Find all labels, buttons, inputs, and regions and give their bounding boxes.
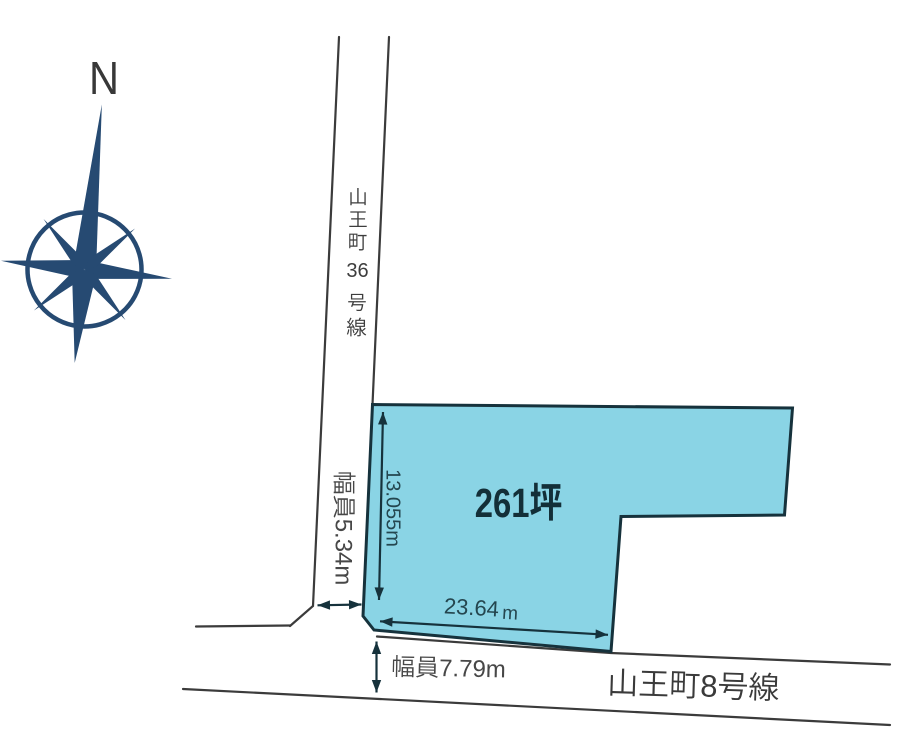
svg-text:m: m [330,565,357,585]
svg-text:N: N [89,52,119,104]
svg-text:9: 9 [472,656,486,683]
svg-text:3: 3 [330,539,357,552]
svg-text:2: 2 [475,479,493,525]
svg-text:23.64: 23.64 [443,593,499,621]
svg-text:7: 7 [439,655,453,682]
svg-text:m: m [502,603,519,625]
svg-text:1: 1 [511,479,529,525]
svg-text:13.055m: 13.055m [382,469,404,547]
svg-text:8: 8 [700,668,718,704]
svg-text:4: 4 [330,552,357,565]
svg-text:36: 36 [346,260,368,282]
svg-text:.: . [330,532,357,539]
svg-text:7: 7 [459,655,473,682]
svg-text:5: 5 [330,519,357,532]
svg-text:m: m [486,656,507,683]
svg-text:6: 6 [493,479,511,525]
